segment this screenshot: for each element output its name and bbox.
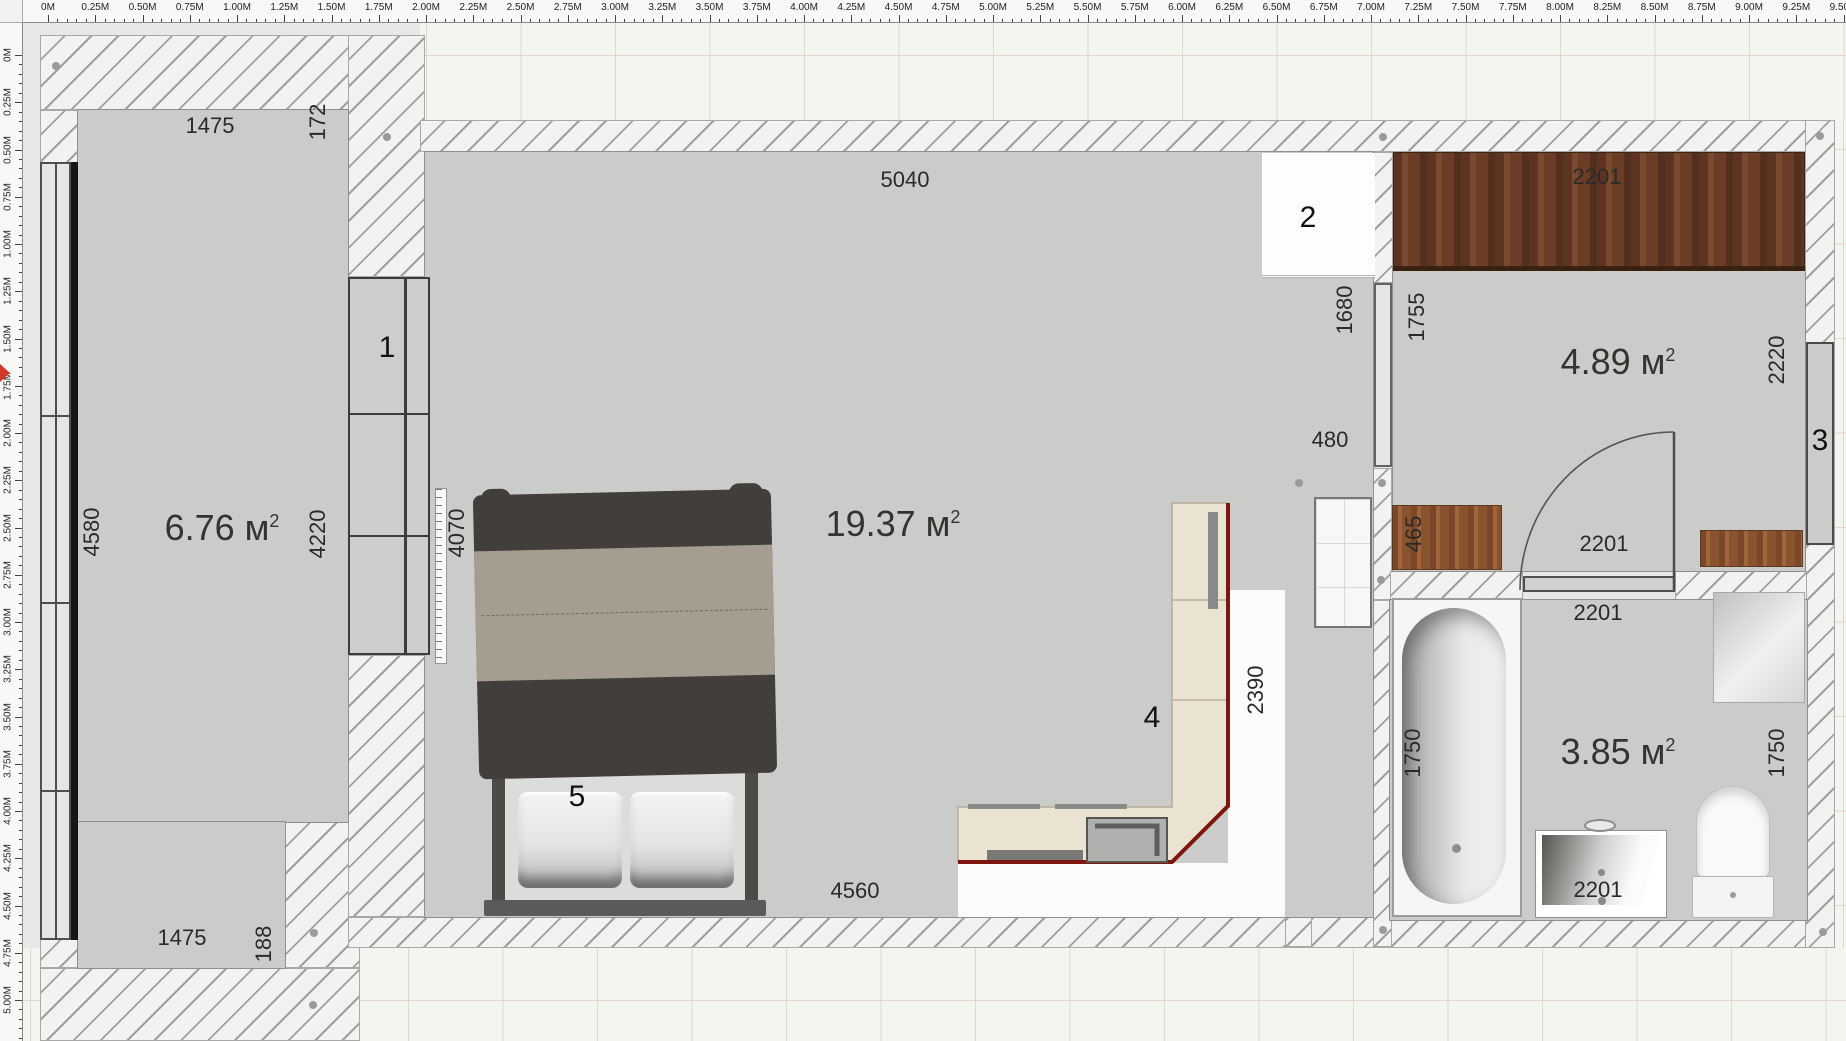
ruler-label: 2.75М	[3, 561, 14, 589]
ruler-tick-minor	[275, 19, 276, 22]
ruler-tick-minor	[1428, 19, 1429, 22]
dim-bath-tub: 1750	[1400, 729, 1426, 778]
ruler-tick-minor	[1106, 19, 1107, 22]
ruler-tick	[1844, 15, 1845, 22]
ruler-tick-minor	[19, 849, 22, 850]
wall-balcony-living-bottom[interactable]	[348, 655, 425, 917]
ruler-label: 0.75М	[176, 2, 204, 13]
hall-cabinet-right[interactable]	[1700, 530, 1803, 567]
ruler-tick-minor	[19, 112, 22, 113]
ruler-label: 1.50М	[318, 2, 346, 13]
ruler-tick	[237, 15, 238, 22]
area-sup: 2	[1665, 735, 1675, 755]
ruler-tick	[15, 244, 22, 245]
wall-joint-dot	[1379, 133, 1387, 141]
ruler-label: 7.00М	[1357, 2, 1385, 13]
toilet[interactable]	[1692, 786, 1774, 918]
ruler-tick-minor	[1579, 19, 1580, 22]
ruler-label: 6.25М	[1215, 2, 1243, 13]
ruler-tick	[1466, 15, 1467, 22]
ruler-tick-minor	[19, 773, 22, 774]
dim-hall-cabinet: 465	[1401, 516, 1427, 553]
ruler-vertical[interactable]: 0М0.25М0.50М0.75М1.00М1.25М1.50М1.75М2.0…	[0, 22, 23, 1041]
ruler-label: 1.25М	[270, 2, 298, 13]
dim-balcony-left: 4580	[79, 508, 105, 557]
ruler-tick-minor	[19, 1009, 22, 1010]
ruler-label: 4.75М	[932, 2, 960, 13]
ruler-label: 1.75М	[365, 2, 393, 13]
ruler-tick-minor	[1787, 19, 1788, 22]
ruler-label: 2.75М	[554, 2, 582, 13]
toilet-flush	[1730, 892, 1736, 898]
wardrobe-divider-h	[350, 535, 428, 537]
ruler-label: 1.25М	[3, 277, 14, 305]
ruler-tick	[95, 15, 96, 22]
area-value: 6.76 м	[165, 507, 270, 548]
sink-dot	[1598, 869, 1605, 876]
ruler-tick-minor	[19, 896, 22, 897]
ruler-label: 5.00М	[979, 2, 1007, 13]
ruler-tick-minor	[511, 19, 512, 22]
ruler-tick	[15, 480, 22, 481]
ruler-tick	[48, 15, 49, 22]
bed-blanket-corner	[481, 489, 512, 516]
ruler-tick-minor	[19, 830, 22, 831]
ruler-tick	[1607, 15, 1608, 22]
fridge[interactable]	[1262, 153, 1375, 278]
ruler-tick-minor	[1626, 19, 1627, 22]
ruler-label: 3.50М	[696, 2, 724, 13]
ruler-label: 4.75М	[3, 939, 14, 967]
area-label-living: 19.37 м2	[826, 503, 961, 545]
ruler-label: 5.25М	[1026, 2, 1054, 13]
ruler-tick-minor	[19, 206, 22, 207]
dim-kitchen-side: 2390	[1243, 666, 1269, 715]
ruler-tick-minor	[19, 972, 22, 973]
ruler-tick	[710, 15, 711, 22]
sink-faucet	[1584, 819, 1616, 832]
ruler-tick-minor	[1551, 19, 1552, 22]
wall-balcony-living-top[interactable]	[348, 35, 425, 277]
ruler-label: 7.25М	[1404, 2, 1432, 13]
ruler-tick-minor	[1154, 19, 1155, 22]
ruler-tick-minor	[19, 726, 22, 727]
ruler-label: 2.50М	[3, 514, 14, 542]
wardrobe-divider-h	[350, 413, 428, 415]
wall-joint-dot	[1819, 928, 1827, 936]
entrance-door[interactable]	[1314, 497, 1372, 628]
ruler-tick-minor	[1362, 19, 1363, 22]
ruler-tick-minor	[1295, 19, 1296, 22]
ruler-tick	[1229, 15, 1230, 22]
ruler-tick-minor	[1173, 19, 1174, 22]
balcony-window-divider	[42, 415, 69, 417]
ruler-tick	[1655, 15, 1656, 22]
ruler-tick-minor	[880, 19, 881, 22]
ruler-tick-minor	[728, 19, 729, 22]
ruler-tick	[15, 906, 22, 907]
ruler-tick	[15, 339, 22, 340]
ruler-tick-minor	[1456, 19, 1457, 22]
ruler-tick-minor	[199, 19, 200, 22]
ruler-tick-minor	[861, 19, 862, 22]
area-value: 19.37 м	[826, 503, 951, 544]
wall-balcony-left-upper[interactable]	[40, 110, 78, 165]
ruler-tick-minor	[265, 19, 266, 22]
ruler-tick	[15, 150, 22, 151]
ruler-tick-minor	[19, 943, 22, 944]
dim-hall-wardrobe: 2201	[1573, 164, 1622, 190]
ruler-tick-minor	[1097, 19, 1098, 22]
ruler-label: 5.75М	[1121, 2, 1149, 13]
ruler-tick-minor	[502, 19, 503, 22]
ruler-label: 9.50М	[1830, 2, 1846, 13]
ruler-tick-minor	[539, 19, 540, 22]
ruler-tick-minor	[577, 19, 578, 22]
ruler-tick-minor	[1588, 19, 1589, 22]
ruler-label: 1.00М	[223, 2, 251, 13]
wall-bath-top-left[interactable]	[1390, 571, 1523, 600]
room-balcony-floor[interactable]	[78, 110, 348, 822]
wall-joint-dot	[1378, 479, 1386, 487]
ruler-tick-minor	[19, 754, 22, 755]
ruler-tick-minor	[785, 19, 786, 22]
wall-thin-partition[interactable]	[1374, 283, 1392, 467]
ruler-label: 4.25М	[3, 844, 14, 872]
ruler-tick-minor	[889, 19, 890, 22]
ruler-tick-minor	[19, 613, 22, 614]
kitchen-white-zone-side	[1228, 590, 1285, 917]
ruler-tick-minor	[19, 991, 22, 992]
ruler-tick-minor	[19, 820, 22, 821]
dim-hall-right: 2220	[1764, 336, 1790, 385]
ruler-tick-minor	[1305, 19, 1306, 22]
area-label-bath: 3.85 м2	[1561, 731, 1676, 773]
ruler-tick-minor	[19, 471, 22, 472]
ruler-label: 0.25М	[81, 2, 109, 13]
ruler-tick-minor	[341, 19, 342, 22]
dim-living-right: 1680	[1332, 286, 1358, 335]
ruler-label: 4.50М	[3, 892, 14, 920]
ruler-tick-minor	[1191, 19, 1192, 22]
ruler-tick	[426, 15, 427, 22]
area-sup: 2	[950, 507, 960, 527]
ruler-label: 1.00М	[3, 230, 14, 258]
ruler-label: 7.75М	[1499, 2, 1527, 13]
hall-door-swing[interactable]	[1518, 430, 1678, 592]
balcony-window-divider	[42, 602, 69, 604]
ruler-tick-minor	[1645, 19, 1646, 22]
ruler-tick	[1324, 15, 1325, 22]
ruler-tick-minor	[19, 272, 22, 273]
ruler-tick-minor	[19, 376, 22, 377]
ruler-tick	[15, 528, 22, 529]
wall-fridge-wardrobe[interactable]	[1373, 152, 1393, 283]
ruler-tick	[1418, 15, 1419, 22]
ruler-tick-minor	[823, 19, 824, 22]
bed-blanket-band	[474, 545, 775, 682]
ruler-tick-minor	[1343, 19, 1344, 22]
ruler-tick-minor	[417, 19, 418, 22]
balcony-window[interactable]	[40, 162, 71, 940]
wall-joint-dot	[1379, 926, 1387, 934]
ruler-tick	[15, 1000, 22, 1001]
ruler-label: 8.25М	[1593, 2, 1621, 13]
bed-pillow-right	[630, 792, 734, 888]
ruler-tick	[662, 15, 663, 22]
marker-window: 3	[1812, 424, 1829, 458]
ruler-tick-minor	[587, 19, 588, 22]
ruler-tick-minor	[1617, 19, 1618, 22]
ruler-tick-minor	[1740, 19, 1741, 22]
ruler-tick-minor	[974, 19, 975, 22]
ruler-label: 2.00М	[3, 419, 14, 447]
ruler-label: 0М	[41, 2, 55, 13]
ruler-tick-minor	[1636, 19, 1637, 22]
ruler-tick-minor	[558, 19, 559, 22]
ruler-tick-minor	[19, 688, 22, 689]
ruler-tick-minor	[1078, 19, 1079, 22]
dim-balcony-bottom-offset: 188	[251, 926, 277, 963]
ruler-tick	[521, 15, 522, 22]
kitchen-counter[interactable]	[956, 501, 1232, 867]
ruler-tick-minor	[1730, 19, 1731, 22]
ruler-tick-minor	[1021, 19, 1022, 22]
ruler-tick	[1560, 15, 1561, 22]
ruler-tick-minor	[19, 1028, 22, 1029]
ruler-tick-minor	[1447, 19, 1448, 22]
bed-blanket	[473, 489, 777, 780]
ruler-label: 0.50М	[129, 2, 157, 13]
ruler-tick-minor	[1248, 19, 1249, 22]
wardrobe-divider-v	[404, 279, 407, 653]
bed[interactable]	[478, 492, 772, 916]
ruler-tick-minor	[832, 19, 833, 22]
ruler-tick-minor	[19, 263, 22, 264]
ruler-tick-minor	[76, 19, 77, 22]
kitchen-hob-bar	[987, 850, 1083, 860]
ruler-tick	[15, 433, 22, 434]
ruler-label: 3.75М	[3, 750, 14, 778]
ruler-tick-minor	[1012, 19, 1013, 22]
ruler-tick-minor	[1758, 19, 1759, 22]
wall-joint-dot	[310, 929, 318, 937]
ruler-tick	[1182, 15, 1183, 22]
ruler-tick-minor	[19, 509, 22, 510]
ruler-tick-minor	[19, 367, 22, 368]
ruler-tick	[143, 15, 144, 22]
bed-base	[484, 900, 766, 916]
ruler-tick-minor	[1031, 19, 1032, 22]
balcony-window-mullion	[55, 164, 57, 938]
area-value: 4.89 м	[1561, 341, 1666, 382]
ruler-label: 2.00М	[412, 2, 440, 13]
ruler-tick	[15, 622, 22, 623]
ruler-tick-minor	[1598, 19, 1599, 22]
shower-tray[interactable]	[1713, 592, 1805, 703]
ruler-tick-minor	[19, 414, 22, 415]
ruler-tick-minor	[19, 887, 22, 888]
ruler-tick-minor	[86, 19, 87, 22]
ruler-tick-minor	[19, 442, 22, 443]
ruler-tick	[15, 717, 22, 718]
ruler-tick-minor	[1286, 19, 1287, 22]
bathroom-sink-cabinet[interactable]	[1535, 830, 1667, 918]
ruler-tick-minor	[303, 19, 304, 22]
ruler-tick-minor	[1683, 19, 1684, 22]
ruler-tick-minor	[19, 1019, 22, 1020]
ruler-tick-minor	[209, 19, 210, 22]
ruler-tick-minor	[19, 868, 22, 869]
ruler-tick-minor	[1569, 19, 1570, 22]
ruler-label: 3.25М	[3, 655, 14, 683]
ruler-tick-minor	[1002, 19, 1003, 22]
ruler-tick-minor	[398, 19, 399, 22]
bed-blanket-stitch	[482, 609, 768, 616]
dim-balcony-bottom: 1475	[158, 925, 207, 951]
ruler-tick	[15, 102, 22, 103]
ruler-tick-minor	[1333, 19, 1334, 22]
ruler-tick-minor	[1409, 19, 1410, 22]
ruler-tick-minor	[19, 962, 22, 963]
ruler-tick-minor	[530, 19, 531, 22]
ruler-label: 0.25М	[3, 88, 14, 116]
wall-joint-dot	[1377, 576, 1385, 584]
ruler-tick-minor	[1825, 19, 1826, 22]
kitchen-wall-rail	[1208, 512, 1218, 609]
ruler-tick-minor	[246, 19, 247, 22]
dim-living-bottom: 4560	[831, 878, 880, 904]
wall-joint-dot	[383, 133, 391, 141]
ruler-tick-minor	[1664, 19, 1665, 22]
ruler-tick-minor	[19, 405, 22, 406]
ruler-tick-minor	[1267, 19, 1268, 22]
ruler-tick-minor	[1125, 19, 1126, 22]
wall-bottom[interactable]	[348, 917, 1835, 948]
balcony-window-divider	[42, 790, 69, 792]
ruler-tick-minor	[256, 19, 257, 22]
ruler-horizontal[interactable]: 0М0.25М0.50М0.75М1.00М1.25М1.50М1.75М2.0…	[0, 0, 1846, 23]
ruler-tick-minor	[19, 159, 22, 160]
ruler-tick-minor	[19, 924, 22, 925]
ruler-label: 2.25М	[3, 466, 14, 494]
wall-living-top[interactable]	[420, 120, 1835, 152]
ruler-tick	[284, 15, 285, 22]
ruler-label: 6.50М	[1263, 2, 1291, 13]
ruler-tick-minor	[596, 19, 597, 22]
ruler-tick-minor	[1390, 19, 1391, 22]
ruler-tick-minor	[19, 225, 22, 226]
ruler-label: 8.50М	[1641, 2, 1669, 13]
ruler-tick-minor	[1210, 19, 1211, 22]
kitchen-white-zone-bottom	[958, 863, 1228, 917]
ruler-tick-minor	[19, 934, 22, 935]
ruler-tick-minor	[19, 783, 22, 784]
ruler-tick-minor	[984, 19, 985, 22]
ruler-tick-minor	[313, 19, 314, 22]
ruler-tick-minor	[19, 253, 22, 254]
marker-kitchen: 4	[1144, 701, 1161, 735]
ruler-tick-minor	[124, 19, 125, 22]
ruler-tick	[1796, 15, 1797, 22]
ruler-tick	[15, 811, 22, 812]
ruler-tick-minor	[1201, 19, 1202, 22]
ruler-tick-minor	[19, 556, 22, 557]
ruler-tick-minor	[624, 19, 625, 22]
ruler-tick-minor	[965, 19, 966, 22]
ruler-tick-minor	[19, 594, 22, 595]
ruler-label: 4.00М	[3, 797, 14, 825]
dim-living-left: 4070	[444, 509, 470, 558]
dim-balcony-top-offset: 172	[305, 104, 331, 141]
dim-balcony-right: 4220	[305, 510, 331, 559]
ruler-label: 8.00М	[1546, 2, 1574, 13]
ruler-tick-minor	[1815, 19, 1816, 22]
wall-joint-dot	[52, 62, 60, 70]
ruler-tick-minor	[1399, 19, 1400, 22]
dim-hall-door: 2201	[1580, 531, 1629, 557]
ruler-tick-minor	[19, 83, 22, 84]
ruler-tick-minor	[719, 19, 720, 22]
ruler-label: 5.50М	[1074, 2, 1102, 13]
ruler-tick-minor	[19, 348, 22, 349]
ruler-tick-minor	[19, 329, 22, 330]
dim-hall-left: 1755	[1404, 293, 1430, 342]
ruler-tick-minor	[19, 745, 22, 746]
ruler-tick-minor	[1484, 19, 1485, 22]
ruler-tick-minor	[1116, 19, 1117, 22]
ruler-tick-minor	[1541, 19, 1542, 22]
area-label-balcony: 6.76 м2	[165, 507, 280, 549]
ruler-tick-minor	[766, 19, 767, 22]
ruler-tick	[1135, 15, 1136, 22]
wall-balcony-top[interactable]	[40, 35, 360, 110]
dim-balcony-top: 1475	[186, 113, 235, 139]
ruler-tick-minor	[1437, 19, 1438, 22]
ruler-tick	[332, 15, 333, 22]
ruler-tick-minor	[152, 19, 153, 22]
ruler-tick-minor	[643, 19, 644, 22]
ruler-tick-minor	[1522, 19, 1523, 22]
ruler-tick	[615, 15, 616, 22]
door-arc	[1520, 432, 1674, 590]
ruler-label: 4.00М	[790, 2, 818, 13]
ruler-tick	[993, 15, 994, 22]
ruler-tick-minor	[1352, 19, 1353, 22]
ruler-tick-minor	[842, 19, 843, 22]
ruler-tick-minor	[738, 19, 739, 22]
ruler-tick	[15, 197, 22, 198]
ruler-label: 6.75М	[1310, 2, 1338, 13]
ruler-tick-minor	[917, 19, 918, 22]
ruler-tick-minor	[634, 19, 635, 22]
ruler-tick	[851, 15, 852, 22]
ruler-tick-minor	[228, 19, 229, 22]
ruler-tick-minor	[1144, 19, 1145, 22]
ruler-tick-minor	[776, 19, 777, 22]
ruler-tick	[15, 764, 22, 765]
toilet-bowl	[1696, 786, 1770, 878]
dim-bath-sink: 2201	[1574, 877, 1623, 903]
ruler-tick-minor	[1834, 19, 1835, 22]
ruler-tick-minor	[407, 19, 408, 22]
ruler-tick-minor	[1768, 19, 1769, 22]
ruler-tick-minor	[19, 1038, 22, 1039]
ruler-tick	[757, 15, 758, 22]
ruler-label: 4.25М	[837, 2, 865, 13]
kitchen-handle	[1055, 804, 1127, 809]
ruler-label: 9.25М	[1782, 2, 1810, 13]
